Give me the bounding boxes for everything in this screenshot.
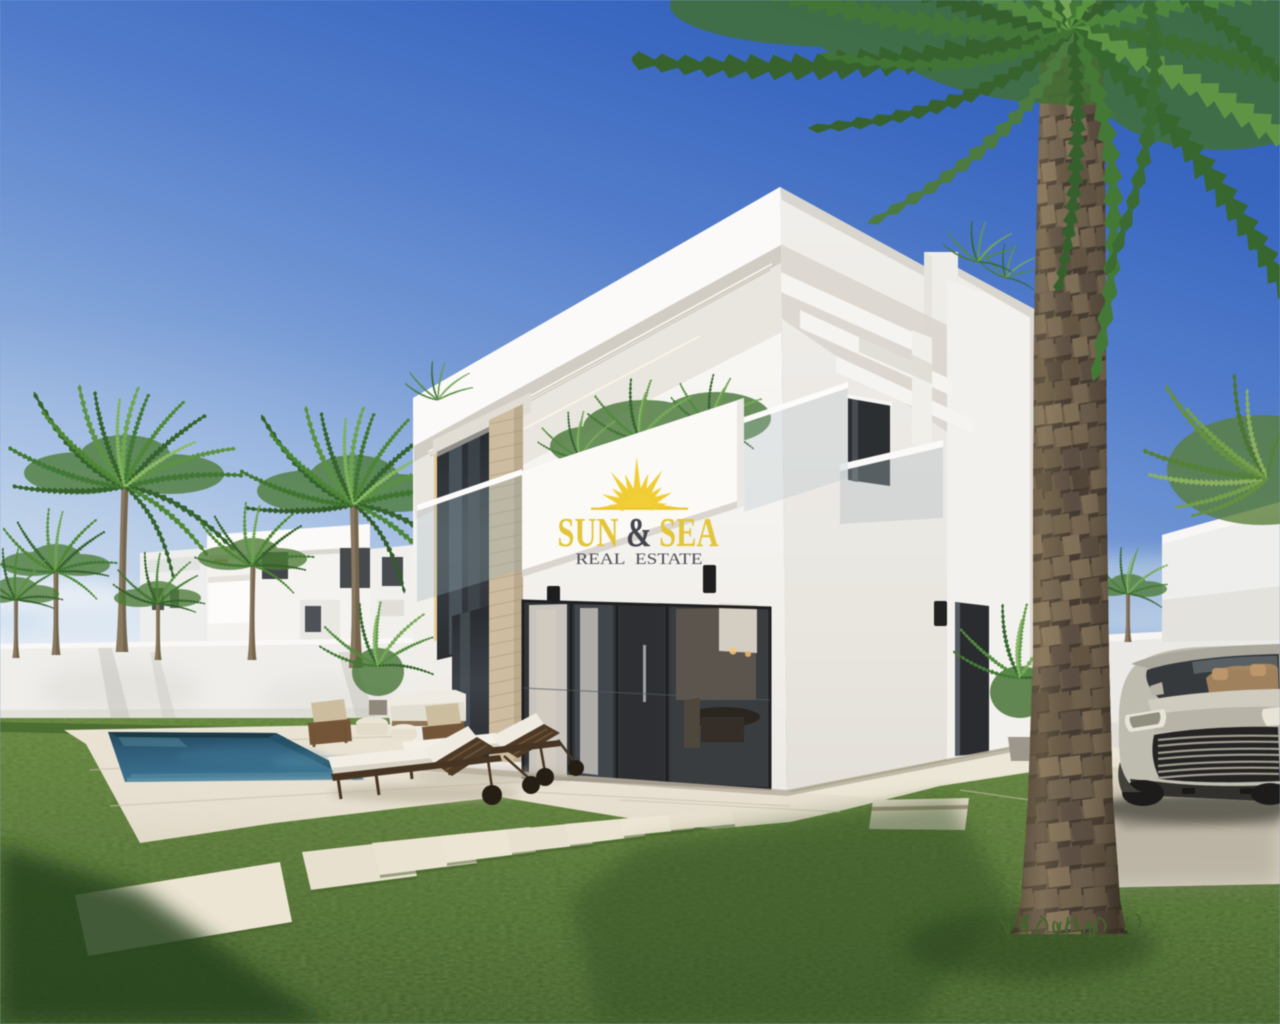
svg-text:SUN & SEA: SUN & SEA (558, 509, 719, 555)
svg-text:REAL ESTATE: REAL ESTATE (576, 551, 703, 568)
